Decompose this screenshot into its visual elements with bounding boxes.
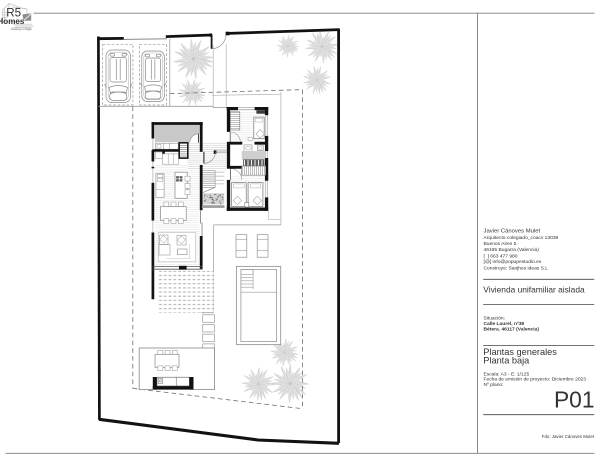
- svg-text:Fdo: Javier Cánoves Mulet: Fdo: Javier Cánoves Mulet: [542, 434, 595, 439]
- svg-text:[@] info@popupestudio.es: [@] info@popupestudio.es: [484, 259, 542, 265]
- svg-text:Situación:: Situación:: [484, 316, 505, 322]
- svg-text:P01: P01: [554, 387, 595, 413]
- svg-text:Fecha de emisión de proyecto:: Fecha de emisión de proyecto: Diciembre …: [484, 377, 587, 383]
- svg-text:Nº plano:: Nº plano:: [484, 382, 504, 388]
- svg-text:[ ] 663 477 980: [ ] 663 477 980: [484, 253, 518, 259]
- svg-text:Calle Laurel, nº38: Calle Laurel, nº38: [484, 321, 525, 327]
- svg-text:46165 Bugarra (Valencia): 46165 Bugarra (Valencia): [484, 247, 540, 253]
- svg-text:construye tu hogar: construye tu hogar: [11, 28, 32, 31]
- svg-text:Bétera. 46117 (Valencia): Bétera. 46117 (Valencia): [484, 326, 540, 332]
- svg-text:Buenos Aires 5 ·: Buenos Aires 5 ·: [484, 241, 520, 247]
- svg-text:Construye: Sanjhes ideas S.L: Construye: Sanjhes ideas S.L: [484, 266, 549, 272]
- svg-text:Arquitecto colegiado_coacv 130: Arquitecto colegiado_coacv 13038: [484, 235, 559, 241]
- svg-text:Vivienda unifamiliar aislada: Vivienda unifamiliar aislada: [483, 285, 585, 295]
- svg-text:Planta baja: Planta baja: [483, 355, 530, 365]
- svg-text:Javier Cánoves Mulet: Javier Cánoves Mulet: [484, 229, 541, 235]
- svg-text:Escala: A3 - E: 1/125: Escala: A3 - E: 1/125: [484, 371, 530, 377]
- svg-text:Homes: Homes: [0, 17, 25, 26]
